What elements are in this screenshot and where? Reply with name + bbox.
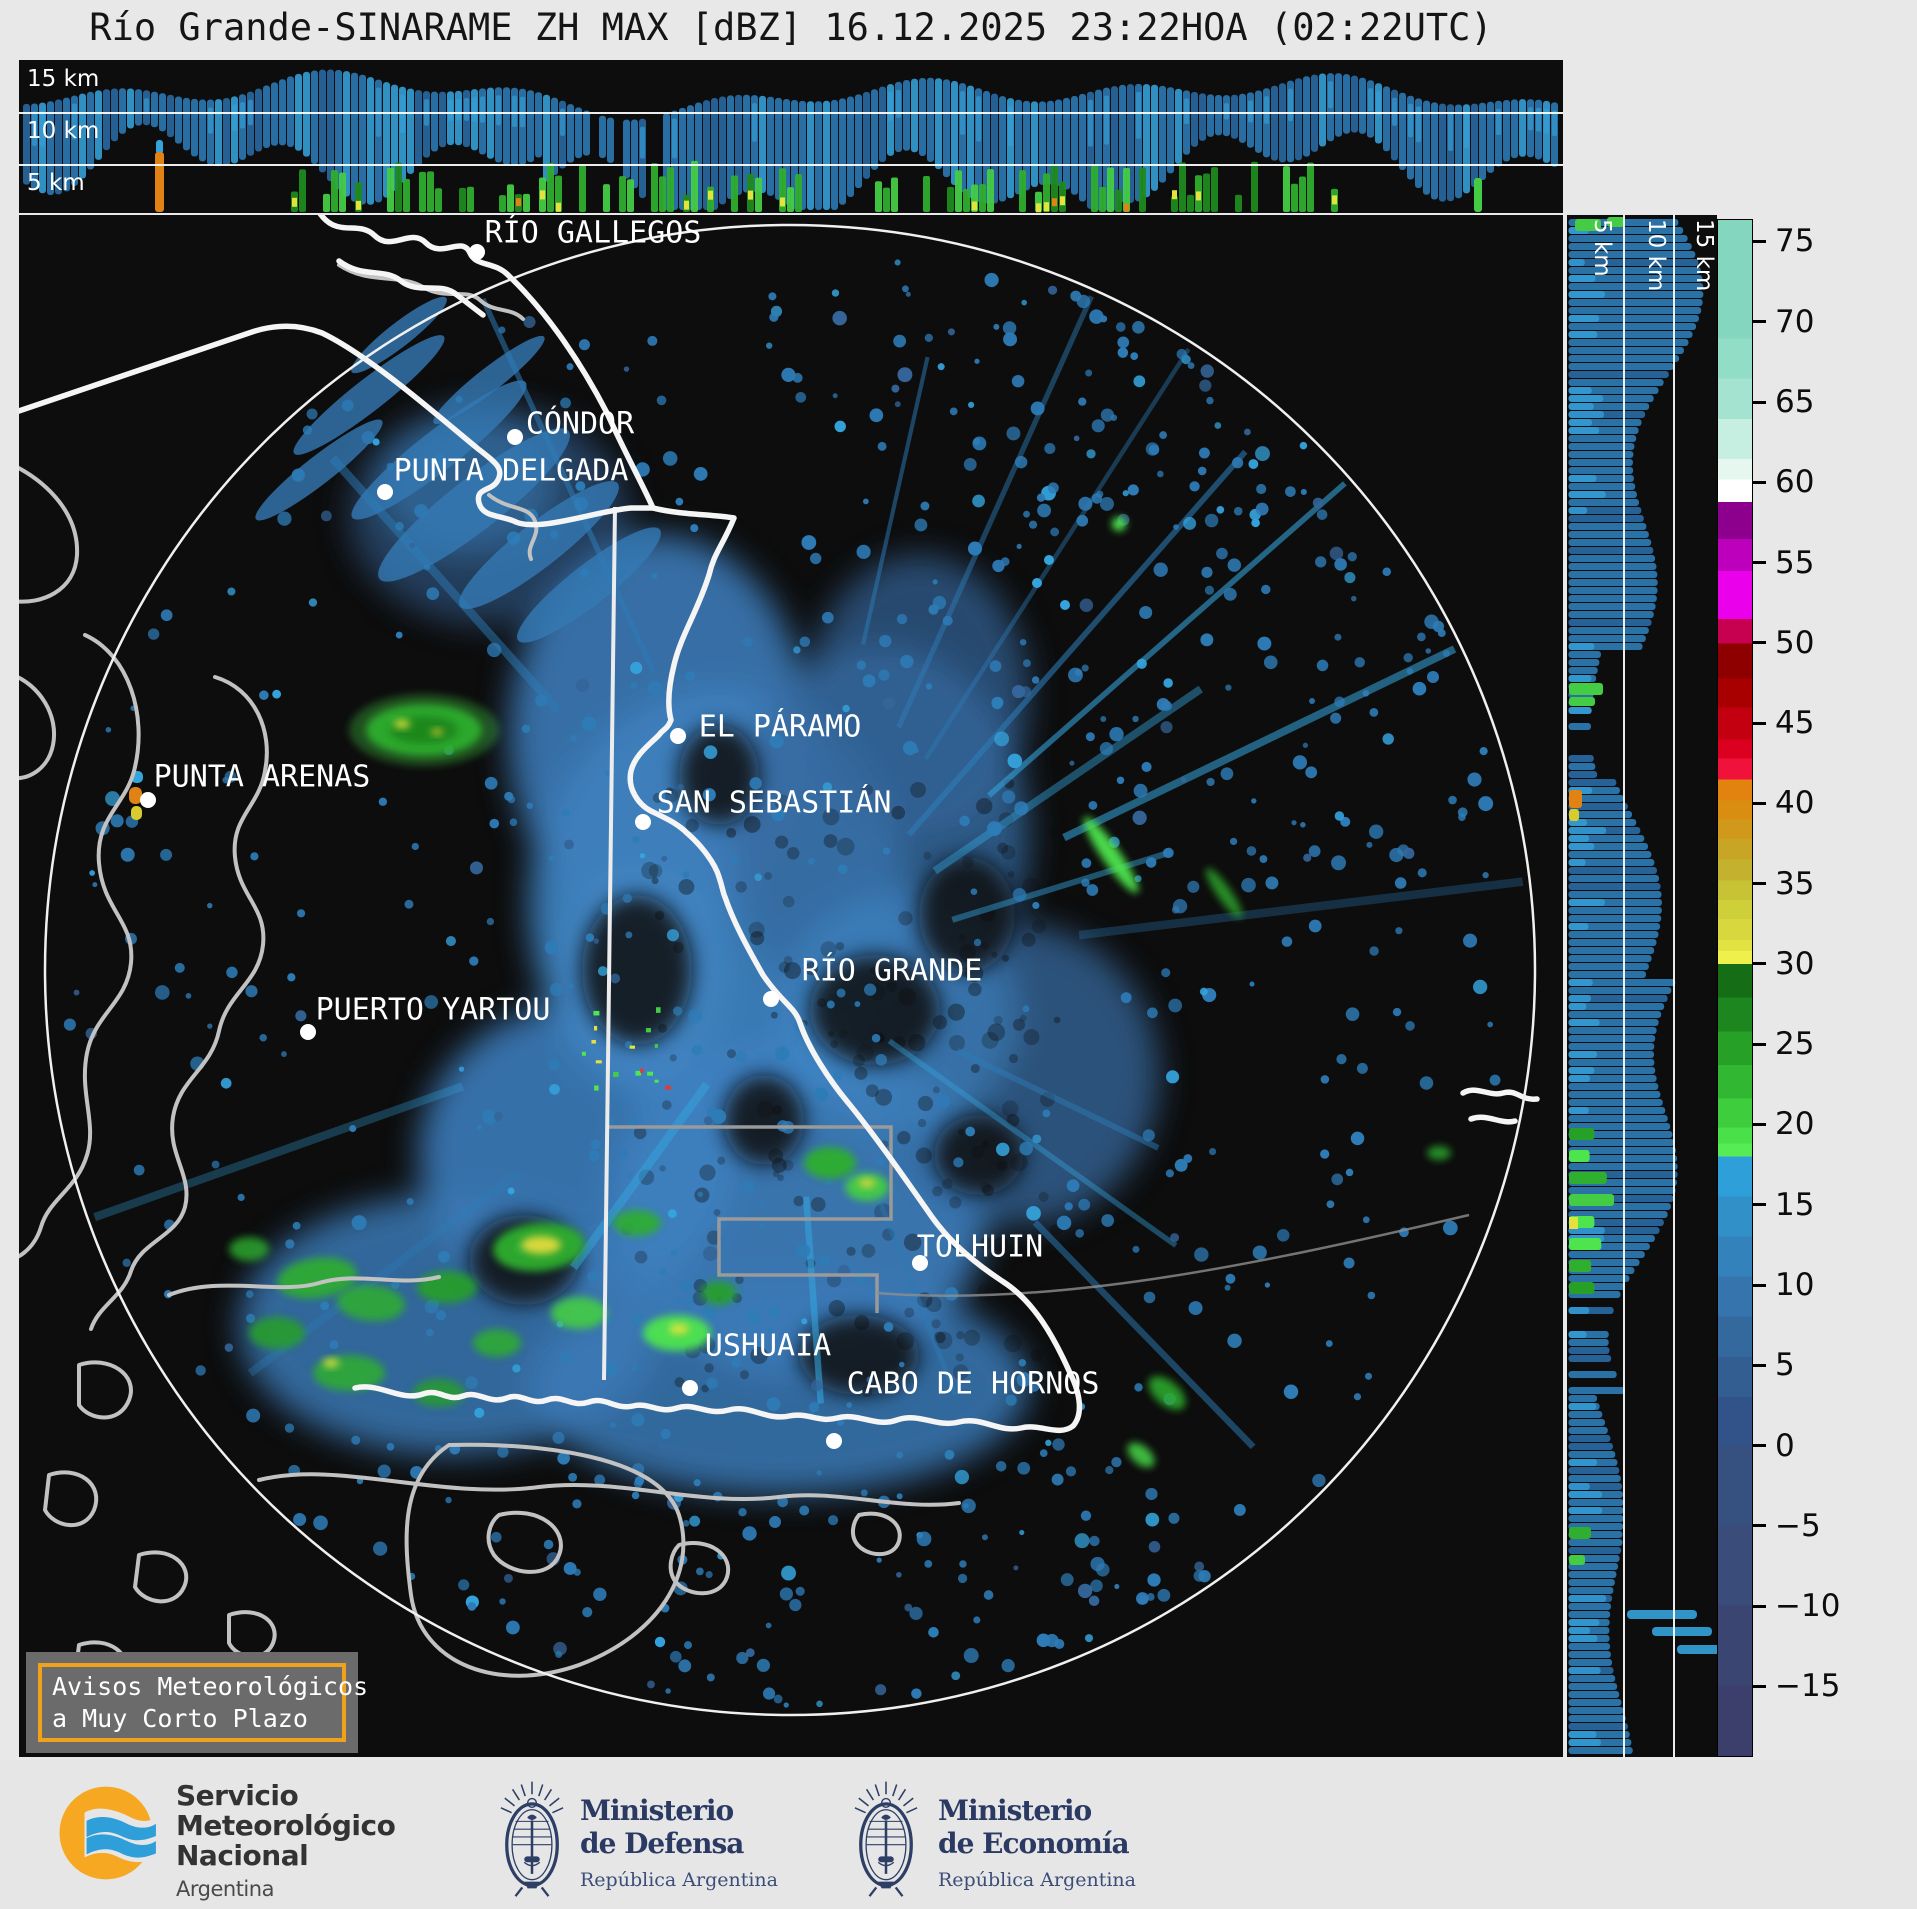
smn-logo-icon bbox=[58, 1782, 160, 1884]
colorbar-tick-mark bbox=[1753, 240, 1766, 243]
colorbar-tick-label: 25 bbox=[1775, 1026, 1814, 1062]
colorbar-tick-label: 10 bbox=[1775, 1267, 1814, 1303]
colorbar-tick-label: 35 bbox=[1775, 866, 1814, 902]
defensa-wordmark: Ministerio de Defensa República Argentin… bbox=[580, 1794, 778, 1897]
colorbar-tick-label: 5 bbox=[1775, 1347, 1795, 1383]
city-dot bbox=[377, 484, 393, 500]
top-cross-section-echoes bbox=[19, 60, 1563, 213]
altitude-label-5km: 5 km bbox=[1589, 219, 1615, 277]
economia-subtitle: República Argentina bbox=[938, 1864, 1136, 1897]
city-dot bbox=[469, 244, 485, 260]
colorbar-tick-mark bbox=[1753, 722, 1766, 725]
colorbar-tick-label: −5 bbox=[1775, 1508, 1821, 1544]
colorbar-tick-mark bbox=[1753, 1444, 1766, 1447]
altitude-label-5km: 5 km bbox=[27, 170, 85, 196]
city-label: EL PÁRAMO bbox=[699, 710, 862, 745]
city-label: USHUAIA bbox=[705, 1329, 831, 1364]
colorbar-tick-label: 55 bbox=[1775, 545, 1814, 581]
altitude-label-10km: 10 km bbox=[1643, 219, 1669, 291]
colorbar-tick-label: 45 bbox=[1775, 705, 1814, 741]
colorbar-tick-label: 20 bbox=[1775, 1106, 1814, 1142]
economia-line-2: de Economía bbox=[938, 1827, 1136, 1860]
smn-country: Argentina bbox=[176, 1874, 395, 1904]
defensa-coat-of-arms-icon bbox=[498, 1772, 566, 1898]
colorbar-tick-label: 70 bbox=[1775, 304, 1814, 340]
altitude-label-10km: 10 km bbox=[27, 118, 99, 144]
altitude-gridline bbox=[1673, 215, 1675, 1757]
colorbar-tick-mark bbox=[1753, 802, 1766, 805]
altitude-label-15km: 15 km bbox=[27, 66, 99, 92]
colorbar-tick-mark bbox=[1753, 962, 1766, 965]
colorbar-tick-mark bbox=[1753, 320, 1766, 323]
city-dot bbox=[670, 728, 686, 744]
colorbar-tick-label: 0 bbox=[1775, 1428, 1795, 1464]
city-dot bbox=[826, 1433, 842, 1449]
city-dot bbox=[507, 429, 523, 445]
economia-wordmark: Ministerio de Economía República Argenti… bbox=[938, 1794, 1136, 1897]
colorbar-tick-mark bbox=[1753, 1524, 1766, 1527]
city-label: PUNTA ARENAS bbox=[154, 760, 371, 795]
city-label: RÍO GRANDE bbox=[802, 954, 983, 989]
defensa-line-1: Ministerio bbox=[580, 1794, 778, 1827]
smn-line-1: Servicio bbox=[176, 1781, 395, 1811]
city-label: TOLHUIN bbox=[917, 1230, 1043, 1265]
colorbar-tick-mark bbox=[1753, 401, 1766, 404]
colorbar-tick-label: 30 bbox=[1775, 946, 1814, 982]
warning-box-border: Avisos Meteorológicos a Muy Corto Plazo bbox=[38, 1663, 346, 1742]
smn-line-2: Meteorológico bbox=[176, 1811, 395, 1841]
altitude-label-15km: 15 km bbox=[1691, 219, 1717, 291]
radar-map-panel: RÍO GALLEGOSCÓNDORPUNTA DELGADAPUNTA ARE… bbox=[19, 215, 1563, 1757]
colorbar-tick-mark bbox=[1753, 1043, 1766, 1046]
city-label: CABO DE HORNOS bbox=[847, 1367, 1100, 1402]
radar-product-page: Río Grande-SINARAME ZH MAX [dBZ] 16.12.2… bbox=[0, 0, 1917, 1909]
warning-line-2: a Muy Corto Plazo bbox=[52, 1703, 332, 1735]
radar-map-graphic bbox=[19, 215, 1563, 1757]
colorbar-tick-mark bbox=[1753, 1685, 1766, 1688]
dbz-colorbar bbox=[1717, 219, 1753, 1757]
cross-section-right-panel: 5 km 10 km 15 km bbox=[1567, 215, 1717, 1757]
colorbar-tick-mark bbox=[1753, 1605, 1766, 1608]
defensa-subtitle: República Argentina bbox=[580, 1864, 778, 1897]
colorbar-tick-label: 50 bbox=[1775, 625, 1814, 661]
city-label: SAN SEBASTIÁN bbox=[657, 786, 892, 821]
warning-box: Avisos Meteorológicos a Muy Corto Plazo bbox=[26, 1652, 358, 1753]
colorbar-tick-mark bbox=[1753, 641, 1766, 644]
defensa-line-2: de Defensa bbox=[580, 1827, 778, 1860]
colorbar-tick-label: 15 bbox=[1775, 1187, 1814, 1223]
economia-coat-of-arms-icon bbox=[852, 1772, 920, 1898]
colorbar-tick-label: −10 bbox=[1775, 1588, 1840, 1624]
colorbar-tick-label: 75 bbox=[1775, 223, 1814, 259]
colorbar-tick-mark bbox=[1753, 1123, 1766, 1126]
colorbar-tick-mark bbox=[1753, 1284, 1766, 1287]
right-cross-section-echoes bbox=[1567, 215, 1717, 1757]
city-dot bbox=[300, 1024, 316, 1040]
colorbar-tick-label: 60 bbox=[1775, 464, 1814, 500]
colorbar-tick-label: −15 bbox=[1775, 1668, 1840, 1704]
city-label: PUNTA DELGADA bbox=[394, 454, 629, 489]
colorbar-tick-mark bbox=[1753, 561, 1766, 564]
city-label: CÓNDOR bbox=[526, 407, 634, 442]
smn-wordmark: Servicio Meteorológico Nacional Argentin… bbox=[176, 1781, 395, 1904]
city-dot bbox=[763, 991, 779, 1007]
smn-line-3: Nacional bbox=[176, 1841, 395, 1871]
city-dot bbox=[682, 1380, 698, 1396]
economia-line-1: Ministerio bbox=[938, 1794, 1136, 1827]
city-label: RÍO GALLEGOS bbox=[485, 216, 702, 251]
dbz-colorbar-ticks: 757065605550454035302520151050−5−10−15 bbox=[1753, 219, 1873, 1757]
altitude-gridline bbox=[19, 112, 1563, 114]
colorbar-tick-mark bbox=[1753, 1364, 1766, 1367]
altitude-gridline bbox=[19, 164, 1563, 166]
colorbar-tick-mark bbox=[1753, 1203, 1766, 1206]
colorbar-tick-label: 40 bbox=[1775, 785, 1814, 821]
colorbar-tick-label: 65 bbox=[1775, 384, 1814, 420]
page-title: Río Grande-SINARAME ZH MAX [dBZ] 16.12.2… bbox=[89, 6, 1492, 49]
city-label: PUERTO YARTOU bbox=[316, 993, 551, 1028]
cross-section-top-panel: 15 km 10 km 5 km bbox=[19, 60, 1563, 213]
warning-line-1: Avisos Meteorológicos bbox=[52, 1671, 332, 1703]
colorbar-tick-mark bbox=[1753, 481, 1766, 484]
city-dot bbox=[635, 814, 651, 830]
altitude-gridline bbox=[1623, 215, 1625, 1757]
colorbar-tick-mark bbox=[1753, 882, 1766, 885]
